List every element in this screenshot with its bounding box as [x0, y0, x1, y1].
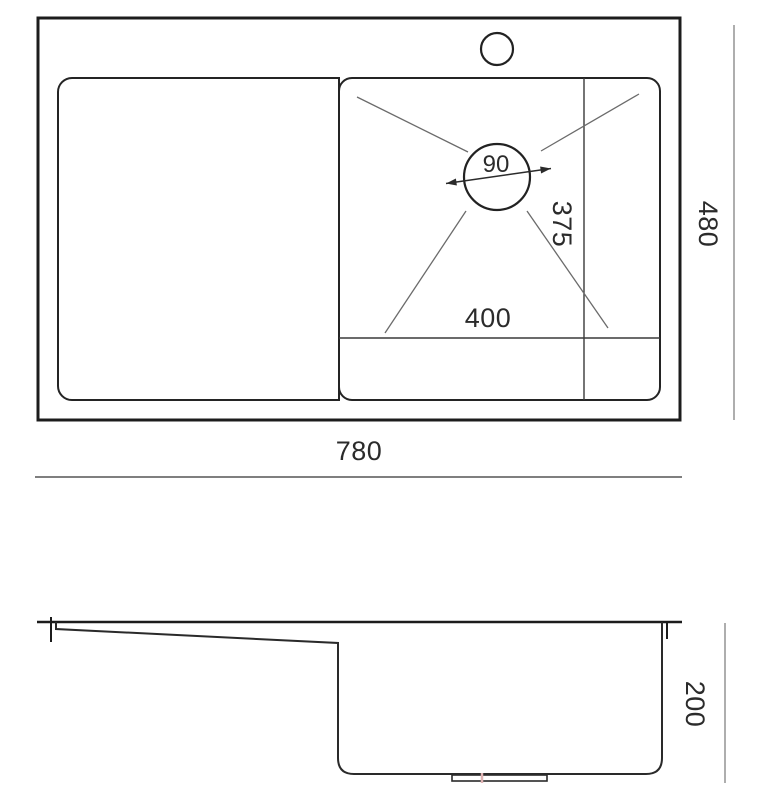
drainboard-panel [58, 78, 339, 400]
diagonal-upper-right [541, 94, 639, 151]
dim-label-overall-width: 780 [336, 436, 383, 466]
dim-label-bowl-height: 200 [680, 681, 710, 728]
dim-label-drain-offset-vertical: 375 [547, 201, 577, 248]
drain-fitting-stub [452, 775, 547, 781]
diagonal-lower-left [385, 211, 466, 333]
drain-locator-diagonals [357, 94, 639, 333]
side-view: 200 [37, 617, 725, 783]
diagonal-upper-left [357, 97, 468, 152]
sink-bowl [339, 78, 660, 400]
dim-label-drain-offset-horizontal: 400 [465, 303, 512, 333]
sink-technical-drawing: 90 375 400 480 780 200 [0, 0, 775, 800]
bowl-profile-outline [56, 622, 662, 774]
drawing-canvas: 90 375 400 480 780 200 [0, 0, 775, 800]
dim-label-overall-depth: 480 [693, 201, 723, 248]
dim-label-drain-diameter: 90 [483, 151, 510, 178]
top-view: 90 375 400 480 780 [35, 18, 734, 477]
faucet-hole [481, 33, 513, 65]
